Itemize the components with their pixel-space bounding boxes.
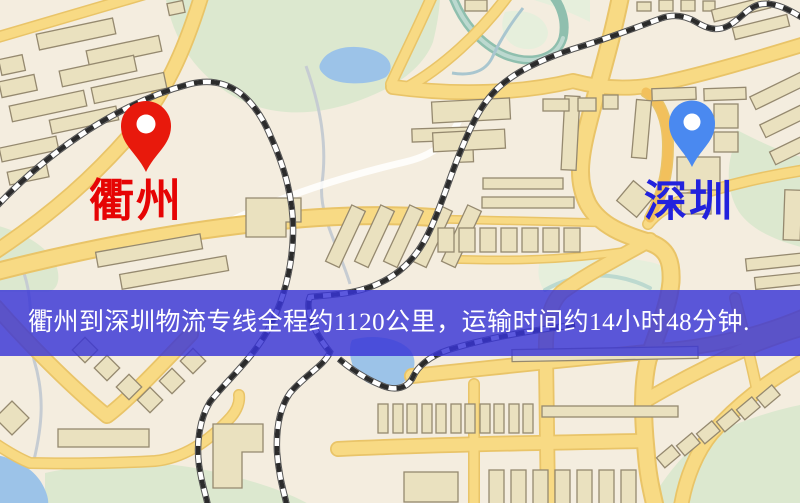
logistics-route-map: 衢州 深圳 衢州到深圳物流专线全程约1120公里，运输时间约14小时48分钟. (0, 0, 800, 503)
destination-city-label: 深圳 (644, 181, 734, 224)
origin-city-label: 衢州 (89, 179, 183, 224)
route-info-banner: 衢州到深圳物流专线全程约1120公里，运输时间约14小时48分钟. (0, 290, 800, 356)
basemap-graphic (0, 0, 800, 503)
route-info-text: 衢州到深圳物流专线全程约1120公里，运输时间约14小时48分钟. (28, 309, 750, 336)
